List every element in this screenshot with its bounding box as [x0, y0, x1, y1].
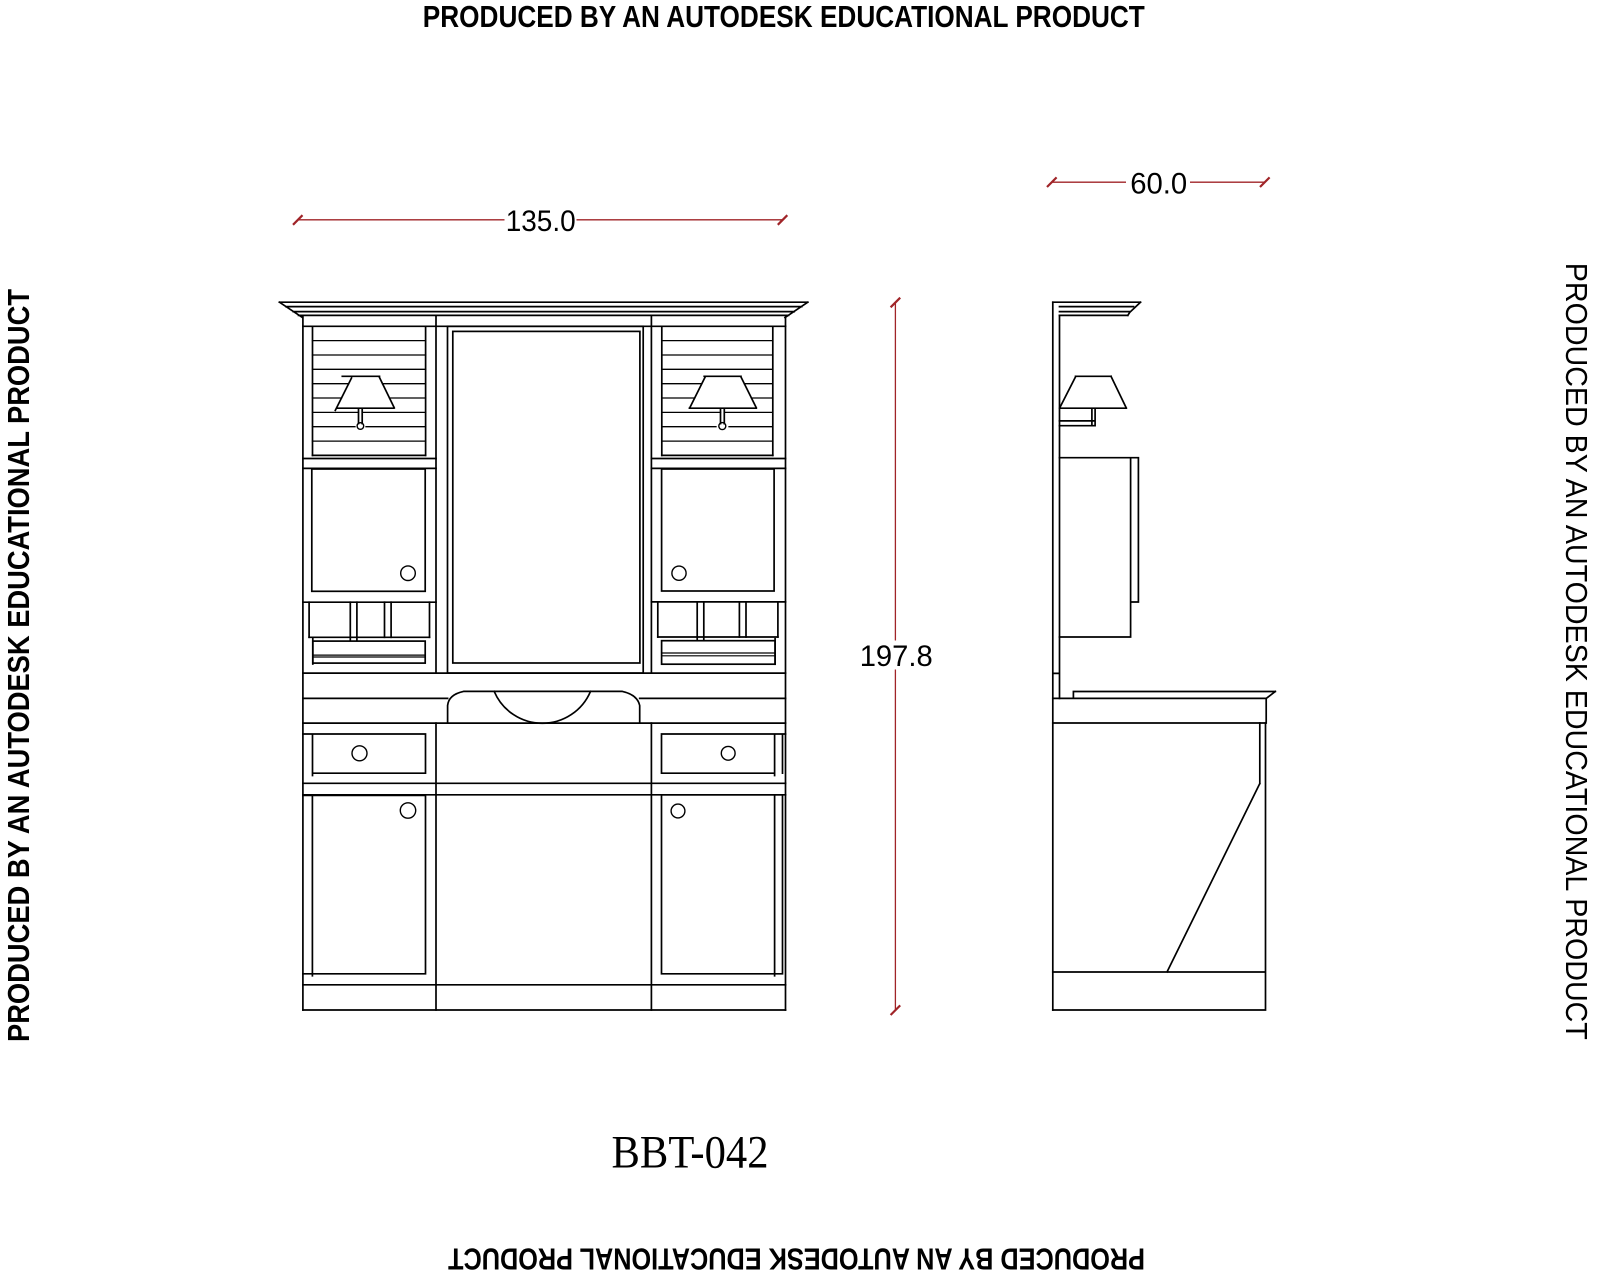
- svg-text:PRODUCED BY AN AUTODESK EDUCAT: PRODUCED BY AN AUTODESK EDUCATIONAL PROD…: [423, 0, 1145, 34]
- svg-text:PRODUCED BY AN AUTODESK EDUCAT: PRODUCED BY AN AUTODESK EDUCATIONAL PROD…: [448, 1242, 1145, 1276]
- svg-text:PRODUCED BY AN AUTODESK EDUCAT: PRODUCED BY AN AUTODESK EDUCATIONAL PROD…: [2, 289, 36, 1042]
- svg-text:PRODUCED BY AN AUTODESK EDUCAT: PRODUCED BY AN AUTODESK EDUCATIONAL PROD…: [1559, 263, 1593, 1040]
- svg-text:BBT-042: BBT-042: [612, 1127, 769, 1179]
- svg-text:60.0: 60.0: [1130, 167, 1187, 200]
- svg-text:197.8: 197.8: [860, 640, 933, 673]
- svg-text:135.0: 135.0: [506, 205, 576, 238]
